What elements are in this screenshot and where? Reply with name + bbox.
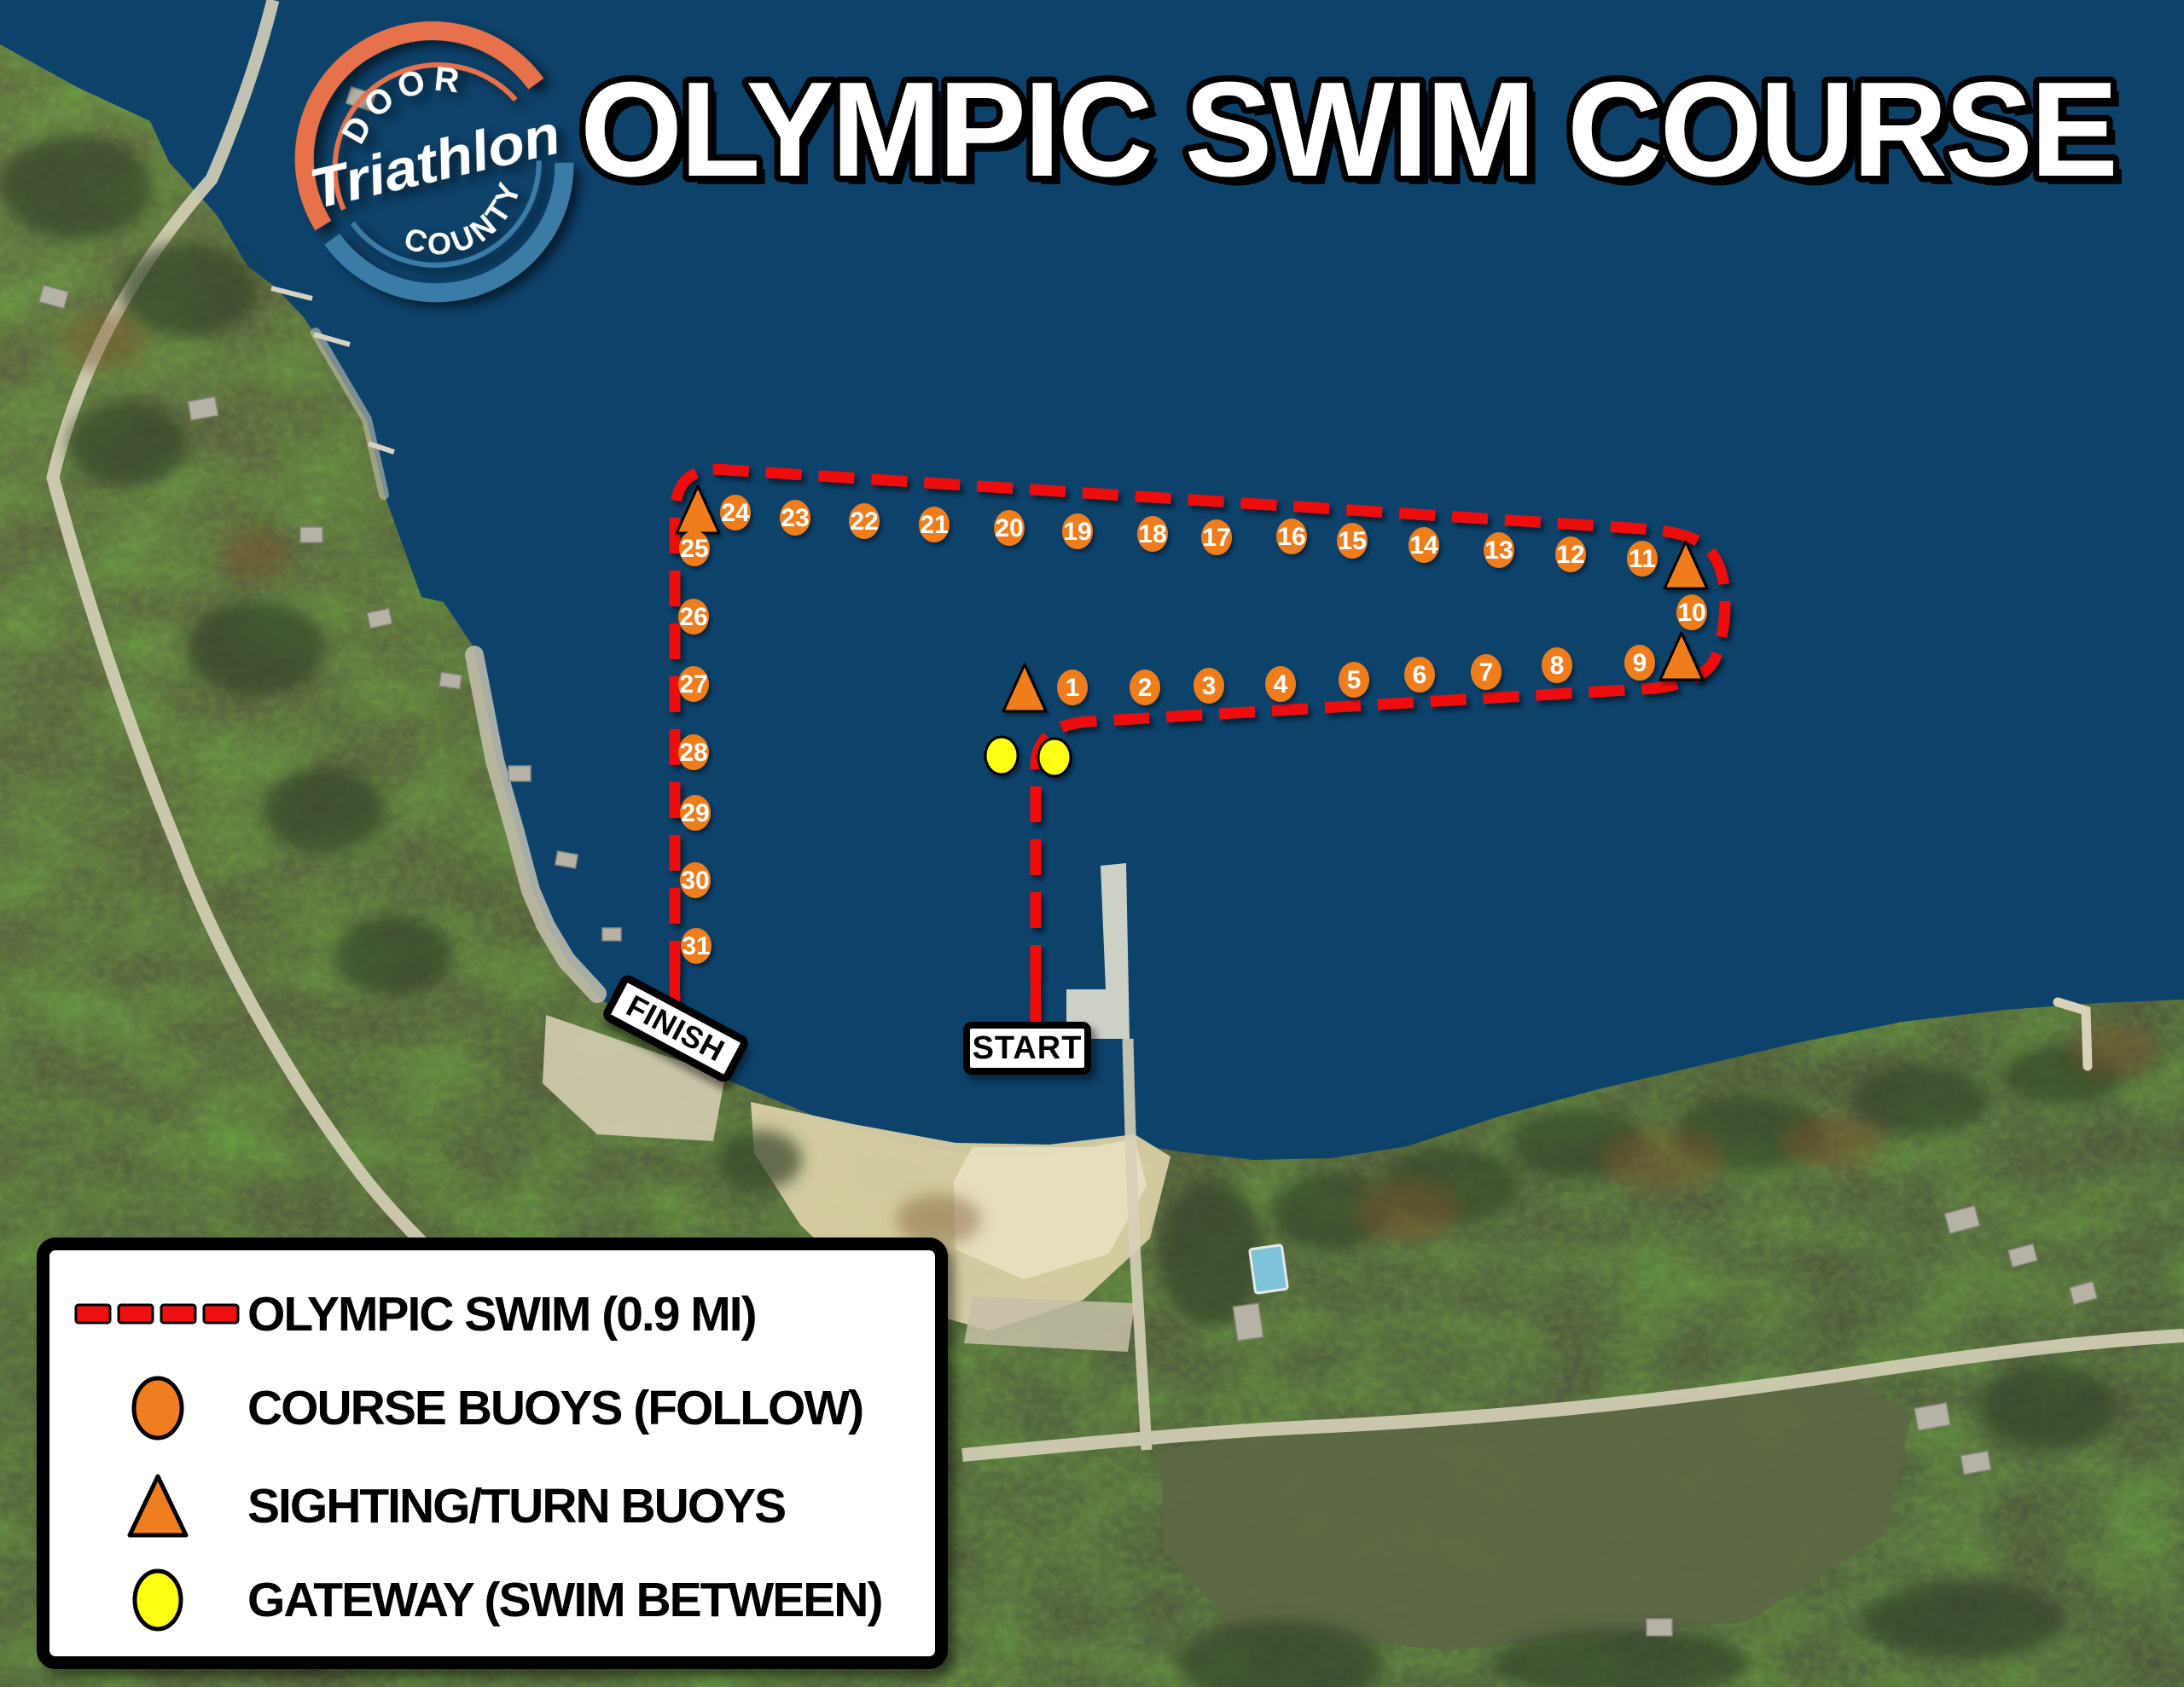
course-buoy-number-5: 5 [1347,666,1362,694]
door-county-triathlon-logo: DOOR COUNTY Triathlon [260,0,610,341]
course-buoy-number-28: 28 [679,739,707,767]
course-buoy-number-12: 12 [1556,541,1584,569]
course-buoy-number-3: 3 [1202,672,1217,700]
course-buoy-number-9: 9 [1633,649,1647,677]
gateway-buoy-icon [68,1564,247,1636]
course-buoy-number-29: 29 [681,799,709,827]
course-buoy-number-26: 26 [679,603,707,631]
course-buoy-number-18: 18 [1138,520,1166,548]
turn-buoy-icon [68,1470,247,1542]
course-buoy-number-15: 15 [1338,527,1366,555]
svg-text:OLYMPIC SWIM COURSE: OLYMPIC SWIM COURSE [580,55,2116,205]
legend-item-course-line: OLYMPIC SWIM (0.9 MI) [68,1276,756,1353]
course-buoy-number-7: 7 [1479,658,1494,687]
course-buoy-number-13: 13 [1484,536,1513,565]
gateway-buoy [1038,739,1071,776]
legend-label: OLYMPIC SWIM (0.9 MI) [247,1286,756,1342]
course-buoy-number-17: 17 [1202,524,1230,552]
course-buoy-number-20: 20 [995,514,1023,542]
course-buoy-number-14: 14 [1409,531,1438,559]
course-buoy-number-21: 21 [920,511,948,539]
course-buoy-number-4: 4 [1274,670,1288,699]
parking-beach [964,1296,1135,1352]
gateway-buoy [985,737,1018,774]
course-buoy-number-23: 23 [781,504,809,532]
legend-item-gateway: GATEWAY (SWIM BETWEEN) [68,1562,881,1638]
course-buoy-number-1: 1 [1066,674,1080,702]
course-buoy-number-31: 31 [682,932,710,960]
legend: OLYMPIC SWIM (0.9 MI) COURSE BUOYS (FOLL… [37,1238,948,1669]
course-buoy-number-2: 2 [1138,674,1153,702]
course-buoy-number-8: 8 [1550,652,1565,680]
course-buoy-number-30: 30 [681,867,709,895]
course-buoy-number-25: 25 [680,535,708,563]
course-buoy-number-16: 16 [1277,523,1305,551]
course-buoy-number-19: 19 [1063,518,1091,546]
legend-item-turn-buoys: SIGHTING/TURN BUOYS [68,1468,785,1545]
course-buoy-number-6: 6 [1413,661,1427,689]
course-buoy-number-22: 22 [850,507,878,536]
start-label: START [963,1022,1091,1075]
course-buoy-number-11: 11 [1629,545,1656,573]
legend-item-course-buoys: COURSE BUOYS (FOLLOW) [68,1370,863,1446]
course-buoy-number-24: 24 [721,499,750,527]
legend-label: GATEWAY (SWIM BETWEEN) [247,1572,881,1628]
pool [1250,1245,1288,1294]
legend-label: COURSE BUOYS (FOLLOW) [247,1380,863,1436]
dashed-line-icon [68,1301,247,1327]
course-buoy-number-10: 10 [1677,599,1705,627]
swim-course-map: 1234567891011121314151617181920212223242… [0,0,2184,1687]
page-title: OLYMPIC SWIM COURSE OLYMPIC SWIM COURSE [580,55,2124,213]
legend-label: SIGHTING/TURN BUOYS [247,1478,785,1534]
course-buoy-icon [68,1372,247,1444]
course-buoy-number-27: 27 [679,670,707,699]
